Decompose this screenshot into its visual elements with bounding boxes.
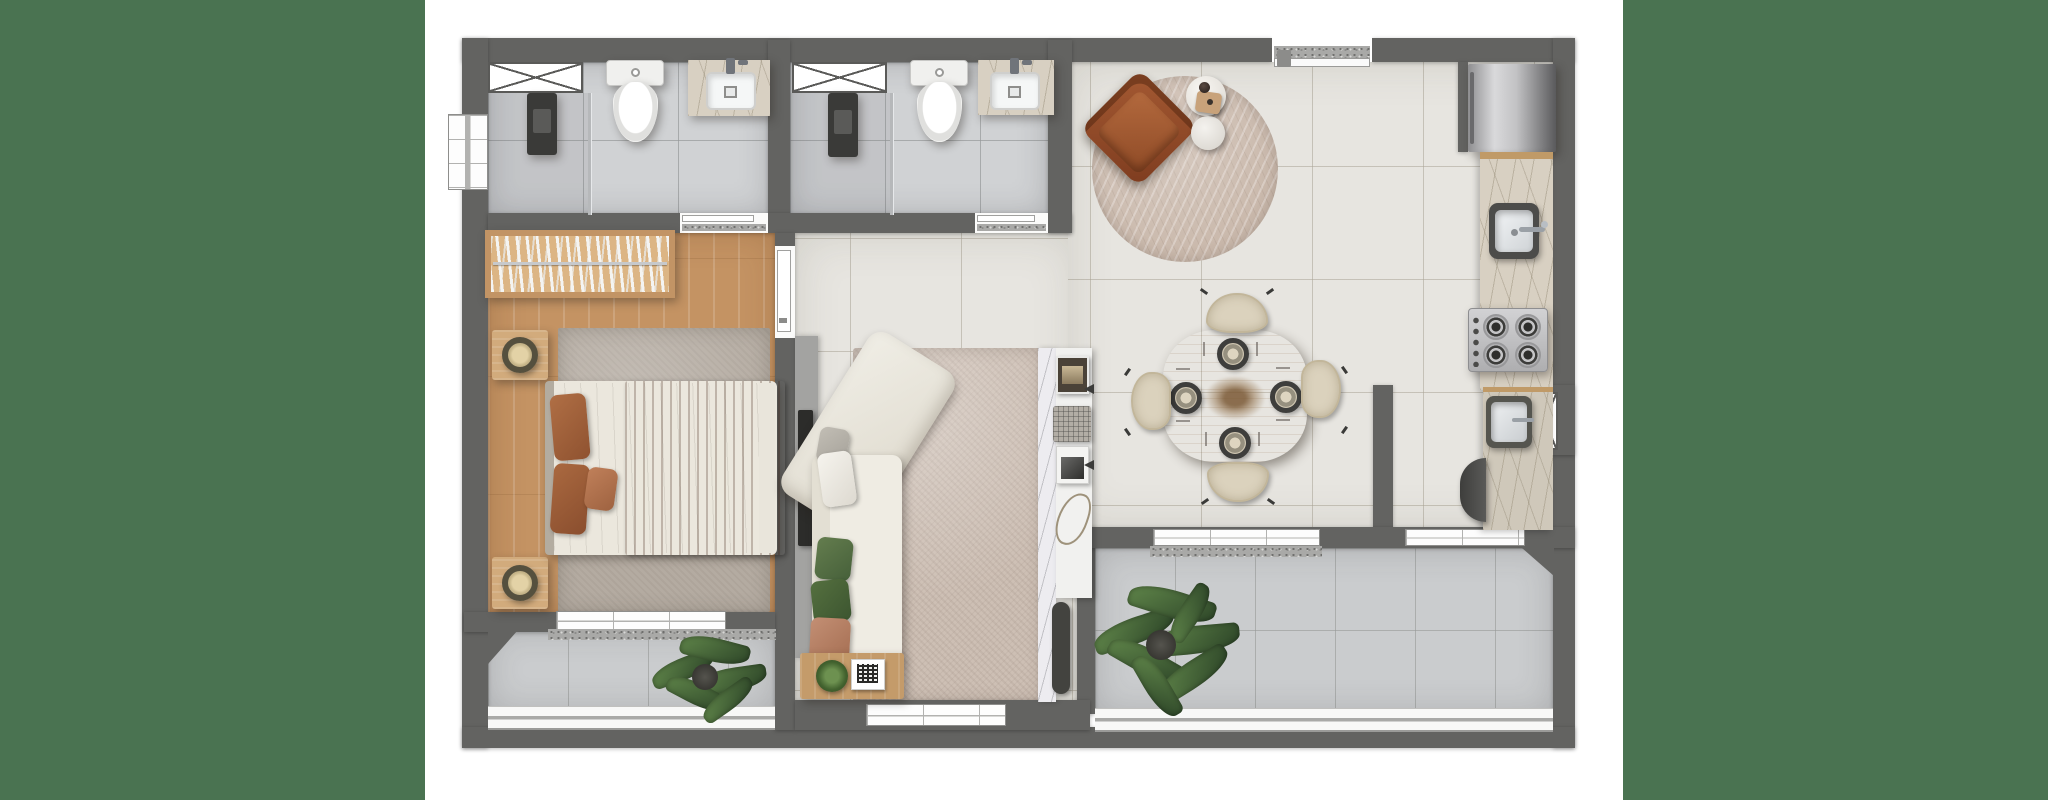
bedroom-balcony-plant (640, 628, 780, 728)
wall-top-left (462, 38, 1272, 62)
burner (1483, 342, 1509, 368)
sofa-pillow-white (816, 450, 857, 508)
table-lamp-bottom (502, 565, 538, 601)
bathroom1-glass-partition (588, 93, 591, 215)
bathroom2-vanity (978, 60, 1054, 115)
vanity-drain (1008, 86, 1021, 98)
left-green-panel (0, 0, 425, 800)
living-south-window (866, 704, 1006, 726)
toilet-flush-button (631, 68, 640, 77)
decor-vase-dark (1199, 82, 1210, 93)
plant-pot (692, 664, 718, 690)
floor-plan-canvas (0, 0, 2048, 800)
vanity-faucet (1010, 58, 1019, 74)
vanity-drain (724, 86, 737, 98)
dinner-plate-east (1270, 381, 1302, 413)
dinner-plate-west (1170, 382, 1202, 414)
bedroom-door-handle (779, 318, 787, 323)
dinner-plate-south (1219, 427, 1251, 459)
dining-balcony-window (1153, 529, 1320, 546)
service-balcony-window (1405, 529, 1525, 546)
console-grill (1052, 602, 1070, 694)
woven-basket (1053, 406, 1091, 442)
magazine-cover-image (1061, 457, 1084, 479)
dining-chair-east (1301, 360, 1341, 418)
vanity-faucet (726, 58, 735, 74)
fridge-handle (1470, 72, 1474, 144)
bed-pillow-1 (549, 393, 591, 462)
laundry-faucet (1512, 418, 1534, 422)
cutlery-mark (1205, 432, 1207, 446)
sofa-pillow-green-1 (814, 536, 854, 582)
laundry-sink-basin (1491, 402, 1527, 442)
shower-glass-panel (533, 109, 551, 133)
counter-wood-edge (1480, 152, 1553, 159)
qr-code-pattern (857, 664, 878, 683)
end-table-plant (816, 660, 848, 692)
bed-cushion-small (583, 466, 619, 512)
bathroom1-shower-column (527, 93, 557, 155)
burner (1483, 314, 1509, 340)
vanity-faucet-handle (1022, 60, 1032, 65)
entry-door-hinge (1277, 50, 1291, 67)
bathroom1-vanity (688, 60, 770, 116)
cooktop-knobs (1472, 315, 1480, 367)
kitchen-faucet-base (1541, 221, 1548, 228)
vanity-faucet-handle (738, 60, 748, 65)
wall-between-bathrooms (768, 40, 790, 215)
counter-wood-edge (1483, 387, 1553, 392)
bathroom1-toilet (606, 60, 664, 144)
kitchen-sink-drain (1511, 229, 1518, 236)
ventilation-shaft-bathroom1 (488, 62, 583, 93)
bathroom2-glass-partition (890, 93, 893, 215)
cutlery-mark (1276, 419, 1290, 421)
burner (1515, 342, 1541, 368)
bathroom2-door-leaf (977, 215, 1035, 222)
decor-bottle (1207, 99, 1213, 105)
shower-glass-panel (834, 110, 852, 134)
shelf-rail (493, 262, 667, 265)
wall-dining-service (1373, 385, 1393, 532)
toilet-flush-button (935, 68, 944, 77)
table-lamp-top (502, 337, 538, 373)
magazine-dark (1056, 356, 1089, 394)
bathroom2-toilet (910, 60, 968, 144)
bathroom2-door-sill (977, 224, 1046, 231)
toilet-bowl (917, 82, 962, 142)
cutlery-mark (1256, 342, 1258, 356)
side-table-round-small (1191, 116, 1225, 150)
main-balcony-plant (1088, 578, 1248, 728)
bathroom2-shower-column (828, 93, 858, 157)
wall-top-right (1372, 38, 1575, 62)
burner (1515, 314, 1541, 340)
dinner-plate-north (1217, 338, 1249, 370)
bed-foot-edge (759, 383, 775, 553)
toilet-bowl (613, 82, 658, 142)
bathroom1-door-leaf (682, 215, 754, 222)
cutlery-mark (1258, 432, 1260, 446)
cutlery-mark (1176, 420, 1190, 422)
magazine-cover-image (1062, 366, 1083, 384)
dining-window-sill (1150, 546, 1322, 557)
bathroom1-door-sill (682, 224, 766, 231)
plant-pot (1146, 630, 1176, 660)
right-green-panel (1623, 0, 2048, 800)
kitchen-sink (1489, 203, 1539, 259)
ventilation-shaft-bathroom2 (792, 62, 887, 93)
refrigerator (1468, 64, 1556, 152)
dining-centerpiece (1205, 376, 1265, 420)
dining-chair-west (1131, 372, 1171, 430)
cutlery-mark (1176, 368, 1190, 370)
bathroom1-side-window (448, 114, 488, 190)
qr-code-card (851, 659, 885, 690)
cooktop (1468, 308, 1548, 372)
kitchen-faucet-spout (1519, 227, 1545, 232)
cutlery-mark (1276, 367, 1290, 369)
cutlery-mark (1203, 342, 1205, 356)
laundry-sink (1486, 396, 1532, 448)
wall-fridge-divider (1458, 62, 1468, 152)
headboard-bookshelf (485, 230, 675, 298)
